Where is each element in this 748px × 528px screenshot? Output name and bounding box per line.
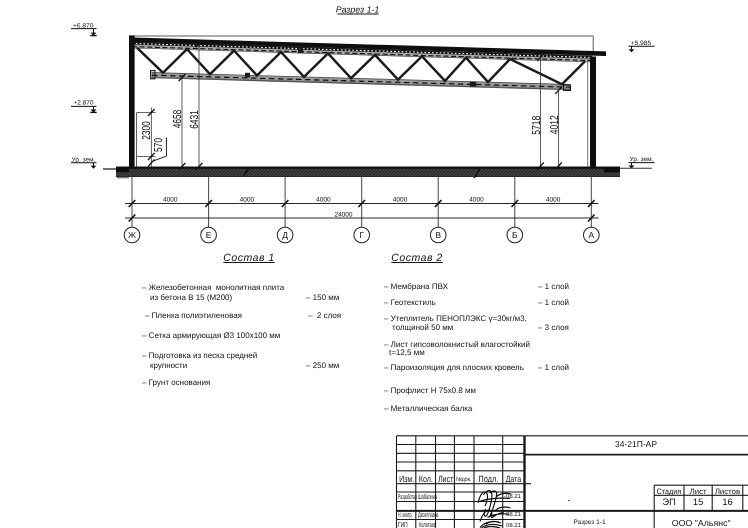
svg-text:Разрез 1-1: Разрез 1-1	[336, 4, 380, 14]
svg-text:Ж: Ж	[128, 230, 136, 240]
svg-text:4658: 4658	[172, 110, 184, 129]
svg-text:5718: 5718	[531, 116, 543, 135]
svg-text:24000: 24000	[334, 212, 352, 219]
svg-text:4000: 4000	[163, 196, 178, 203]
svg-text:Б: Б	[512, 230, 518, 240]
svg-text:4000: 4000	[240, 196, 255, 203]
svg-text:+2.870: +2.870	[74, 99, 95, 106]
svg-text:6431: 6431	[189, 110, 201, 129]
svg-text:570: 570	[153, 138, 165, 152]
svg-text:4000: 4000	[469, 196, 484, 203]
svg-text:Г: Г	[359, 230, 364, 240]
svg-text:А: А	[588, 230, 594, 240]
svg-text:2300: 2300	[141, 121, 153, 140]
svg-text:4000: 4000	[393, 196, 408, 203]
svg-text:4012: 4012	[549, 115, 561, 134]
svg-text:Е: Е	[206, 230, 212, 240]
svg-text:4000: 4000	[316, 196, 331, 203]
svg-text:В: В	[435, 230, 441, 240]
svg-text:4000: 4000	[546, 196, 561, 203]
svg-text:Д: Д	[282, 230, 288, 240]
